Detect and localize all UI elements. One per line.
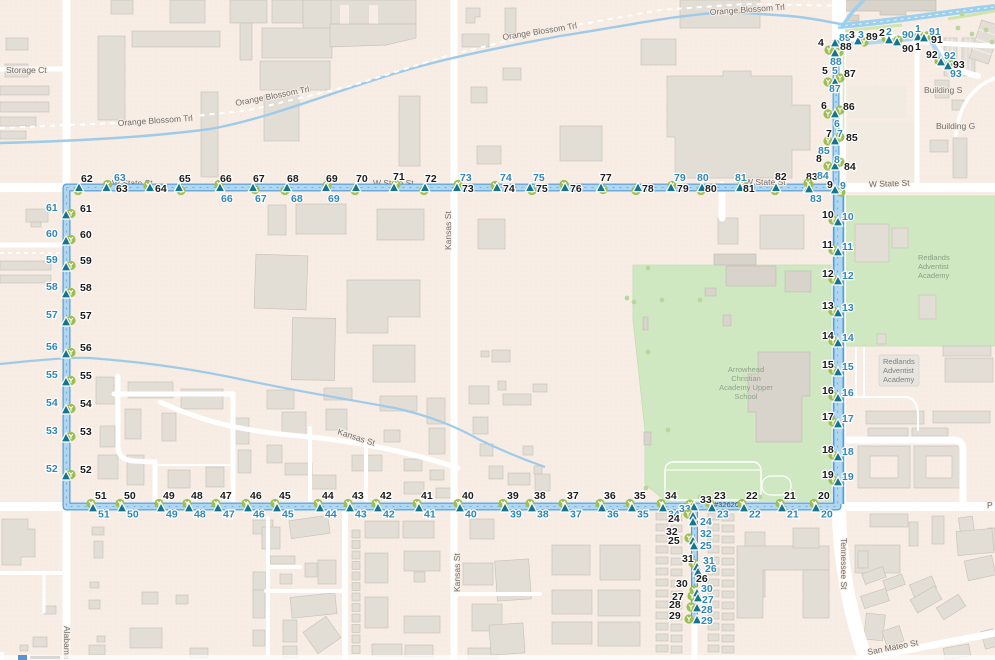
svg-text:86: 86 <box>843 101 855 113</box>
svg-text:15: 15 <box>842 361 854 373</box>
svg-text:50: 50 <box>127 509 139 521</box>
svg-text:1: 1 <box>915 23 921 35</box>
svg-text:46: 46 <box>250 490 262 502</box>
svg-text:56: 56 <box>80 342 92 354</box>
svg-text:Storage Ct: Storage Ct <box>6 65 47 75</box>
svg-text:46: 46 <box>253 509 265 521</box>
svg-text:36: 36 <box>604 490 616 502</box>
svg-text:47: 47 <box>223 509 235 521</box>
svg-text:44: 44 <box>325 509 337 521</box>
svg-text:Academy: Academy <box>883 375 915 384</box>
svg-text:Redlands: Redlands <box>883 357 915 366</box>
svg-text:77: 77 <box>600 172 612 184</box>
svg-text:48: 48 <box>191 490 203 502</box>
svg-text:90: 90 <box>902 29 914 41</box>
svg-text:66: 66 <box>220 173 232 185</box>
svg-text:76: 76 <box>570 183 582 195</box>
svg-text:41: 41 <box>424 509 436 521</box>
svg-text:56: 56 <box>46 341 58 353</box>
svg-text:16: 16 <box>842 387 854 399</box>
svg-text:87: 87 <box>844 68 856 80</box>
svg-text:48: 48 <box>194 509 206 521</box>
svg-text:25: 25 <box>700 540 712 552</box>
svg-text:Building S: Building S <box>924 85 963 95</box>
svg-text:7: 7 <box>837 128 843 140</box>
svg-text:78: 78 <box>642 183 654 195</box>
svg-text:19: 19 <box>842 471 854 483</box>
svg-text:12: 12 <box>822 268 834 280</box>
svg-text:21: 21 <box>784 490 796 502</box>
svg-text:9: 9 <box>827 179 833 191</box>
svg-text:Kansas St: Kansas St <box>452 553 462 592</box>
svg-text:51: 51 <box>98 509 110 521</box>
svg-text:68: 68 <box>291 193 303 205</box>
svg-text:49: 49 <box>163 490 175 502</box>
svg-text:52: 52 <box>46 463 58 475</box>
svg-text:37: 37 <box>567 490 579 502</box>
svg-text:59: 59 <box>80 255 92 267</box>
svg-text:67: 67 <box>253 173 265 185</box>
svg-text:33: 33 <box>700 494 712 506</box>
svg-text:53: 53 <box>80 426 92 438</box>
svg-text:17: 17 <box>842 413 854 425</box>
svg-text:57: 57 <box>80 310 92 322</box>
svg-text:Academy: Academy <box>918 271 950 280</box>
svg-text:25: 25 <box>668 535 680 547</box>
svg-text:P: P <box>987 500 993 510</box>
svg-text:29: 29 <box>669 610 681 622</box>
svg-text:60: 60 <box>80 229 92 241</box>
svg-text:64: 64 <box>155 183 167 195</box>
svg-text:18: 18 <box>822 444 834 456</box>
svg-text:51: 51 <box>95 490 107 502</box>
svg-text:12: 12 <box>842 270 854 282</box>
svg-text:42: 42 <box>380 490 392 502</box>
svg-text:43: 43 <box>352 490 364 502</box>
svg-text:75: 75 <box>536 183 548 195</box>
svg-text:54: 54 <box>46 397 58 409</box>
svg-text:53: 53 <box>46 425 58 437</box>
svg-text:35: 35 <box>637 509 649 521</box>
svg-text:61: 61 <box>46 202 58 214</box>
svg-text:66: 66 <box>221 193 233 205</box>
svg-text:54: 54 <box>80 398 92 410</box>
svg-text:83: 83 <box>810 193 822 205</box>
svg-text:50: 50 <box>124 490 136 502</box>
svg-text:69: 69 <box>328 193 340 205</box>
svg-text:22: 22 <box>746 490 758 502</box>
svg-text:92: 92 <box>926 49 938 61</box>
svg-text:23: 23 <box>717 509 729 521</box>
svg-text:21: 21 <box>787 509 799 521</box>
svg-text:61: 61 <box>80 203 92 215</box>
svg-text:40: 40 <box>465 509 477 521</box>
svg-text:22: 22 <box>749 509 761 521</box>
svg-text:62: 62 <box>81 173 93 185</box>
svg-text:30: 30 <box>676 578 688 590</box>
svg-text:4: 4 <box>818 37 824 49</box>
svg-text:20: 20 <box>818 490 830 502</box>
svg-text:44: 44 <box>322 490 334 502</box>
svg-text:73: 73 <box>462 183 474 195</box>
svg-text:18: 18 <box>842 446 854 458</box>
svg-text:34: 34 <box>665 490 677 502</box>
svg-text:39: 39 <box>507 490 519 502</box>
svg-text:45: 45 <box>282 509 294 521</box>
svg-text:63: 63 <box>116 183 128 195</box>
svg-text:W State St: W State St <box>869 178 911 189</box>
svg-text:7: 7 <box>826 128 832 140</box>
svg-text:8: 8 <box>834 154 840 166</box>
svg-text:29: 29 <box>701 615 713 627</box>
svg-text:11: 11 <box>842 241 853 253</box>
svg-text:Arrowhead: Arrowhead <box>728 365 764 374</box>
svg-text:52: 52 <box>80 464 92 476</box>
svg-text:16: 16 <box>822 385 834 397</box>
svg-text:39: 39 <box>510 509 522 521</box>
svg-text:17: 17 <box>822 411 834 423</box>
svg-text:9: 9 <box>840 180 846 192</box>
svg-text:90: 90 <box>902 43 914 55</box>
svg-text:23: 23 <box>714 490 726 502</box>
svg-text:3: 3 <box>858 29 864 41</box>
svg-text:45: 45 <box>279 490 291 502</box>
svg-text:40: 40 <box>462 490 474 502</box>
svg-text:36: 36 <box>607 509 619 521</box>
svg-text:38: 38 <box>534 490 546 502</box>
svg-text:Tennessee St: Tennessee St <box>839 538 849 590</box>
svg-text:58: 58 <box>80 282 92 294</box>
svg-text:Alabama St: Alabama St <box>62 626 72 660</box>
svg-text:43: 43 <box>355 509 367 521</box>
svg-text:65: 65 <box>179 173 191 185</box>
svg-text:49: 49 <box>166 509 178 521</box>
svg-text:3: 3 <box>849 29 855 41</box>
svg-text:67: 67 <box>255 193 267 205</box>
svg-text:58: 58 <box>46 281 58 293</box>
svg-text:32: 32 <box>700 528 712 540</box>
svg-text:81: 81 <box>743 183 755 195</box>
svg-text:41: 41 <box>421 490 433 502</box>
svg-text:15: 15 <box>822 359 834 371</box>
svg-text:10: 10 <box>842 211 854 223</box>
svg-text:38: 38 <box>537 509 549 521</box>
svg-text:68: 68 <box>287 173 299 185</box>
svg-text:2: 2 <box>886 26 892 38</box>
svg-text:80: 80 <box>705 183 717 195</box>
svg-text:37: 37 <box>570 509 582 521</box>
svg-text:42: 42 <box>383 509 395 521</box>
svg-text:84: 84 <box>844 161 856 173</box>
svg-text:20: 20 <box>821 509 833 521</box>
svg-text:72: 72 <box>425 173 437 185</box>
svg-text:57: 57 <box>46 309 58 321</box>
svg-text:Redlands: Redlands <box>918 253 950 262</box>
svg-text:24: 24 <box>700 516 712 528</box>
svg-text:26: 26 <box>705 563 717 575</box>
svg-text:1: 1 <box>915 41 921 53</box>
svg-text:Christian: Christian <box>731 374 761 383</box>
svg-text:71: 71 <box>393 171 405 183</box>
svg-text:2: 2 <box>879 27 885 39</box>
svg-text:Adventist: Adventist <box>918 262 950 271</box>
svg-text:School: School <box>735 392 758 401</box>
svg-text:Adventist: Adventist <box>883 366 915 375</box>
svg-text:35: 35 <box>634 490 646 502</box>
svg-text:24: 24 <box>668 513 680 525</box>
svg-text:89: 89 <box>866 31 878 43</box>
svg-text:8: 8 <box>816 153 822 165</box>
svg-text:55: 55 <box>80 370 92 382</box>
svg-text:Kansas St: Kansas St <box>443 211 453 250</box>
svg-text:70: 70 <box>356 173 368 185</box>
svg-text:47: 47 <box>220 490 232 502</box>
svg-text:55: 55 <box>46 369 58 381</box>
svg-text:5: 5 <box>822 65 828 77</box>
svg-text:93: 93 <box>950 68 962 80</box>
svg-text:13: 13 <box>822 300 834 312</box>
svg-text:19: 19 <box>822 469 834 481</box>
svg-text:69: 69 <box>326 173 338 185</box>
svg-text:Academy Upper: Academy Upper <box>719 383 773 392</box>
svg-text:85: 85 <box>846 132 858 144</box>
svg-text:91: 91 <box>931 34 943 46</box>
svg-text:31: 31 <box>682 553 694 565</box>
svg-text:82: 82 <box>775 171 787 183</box>
svg-text:79: 79 <box>677 183 689 195</box>
svg-text:6: 6 <box>821 100 827 112</box>
svg-text:13: 13 <box>842 302 854 314</box>
svg-text:59: 59 <box>46 254 58 266</box>
svg-text:14: 14 <box>822 330 834 342</box>
svg-text:11: 11 <box>822 239 833 251</box>
svg-text:74: 74 <box>503 183 515 195</box>
svg-text:14: 14 <box>842 332 854 344</box>
svg-text:88: 88 <box>830 56 842 68</box>
svg-text:87: 87 <box>829 83 841 95</box>
svg-text:60: 60 <box>46 228 58 240</box>
svg-text:Building G: Building G <box>936 121 975 131</box>
svg-text:10: 10 <box>822 209 834 221</box>
